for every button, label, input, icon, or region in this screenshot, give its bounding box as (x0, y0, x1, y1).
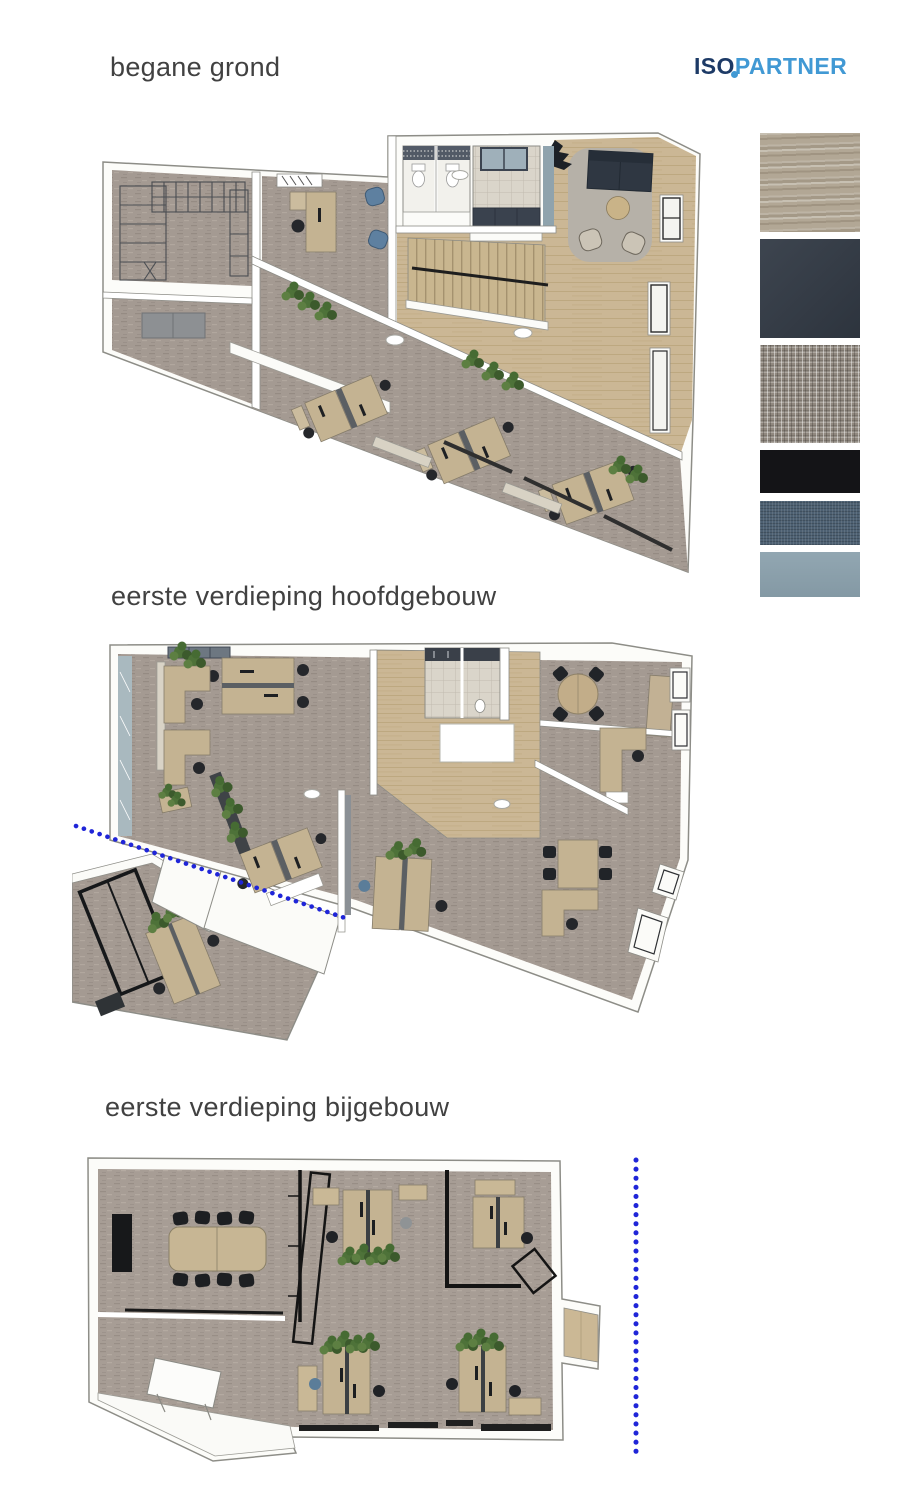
isopartner-logo: ISOPARTNER (694, 53, 847, 80)
toilet (412, 164, 425, 187)
floor-plan-begane-grond (92, 120, 704, 582)
tv-screen (112, 1214, 132, 1272)
plan-title-bijgebouw: eerste verdieping bijgebouw (105, 1092, 449, 1123)
material-swatch-carpet (760, 345, 860, 443)
vestibule (564, 1308, 598, 1362)
sofa (587, 150, 653, 191)
glass-wall (118, 656, 132, 836)
office-chair (292, 220, 305, 233)
floor-plan-hoofdgebouw (72, 632, 707, 1042)
logo-o-dot-icon (731, 71, 738, 78)
meeting-desk (558, 840, 598, 888)
plan-sheet: begane grond ISOPARTNER (0, 0, 900, 1494)
material-swatch-charcoal (760, 239, 860, 338)
logo-iso: ISO (694, 53, 735, 79)
conference-table (169, 1227, 266, 1271)
plan-title-hoofdgebouw: eerste verdieping hoofdgebouw (111, 581, 496, 612)
stair-void (440, 724, 514, 762)
plan-title-begane-grond: begane grond (110, 52, 280, 83)
logo-partner: PARTNER (735, 53, 847, 79)
coffee-table (607, 197, 630, 220)
material-swatch-denim (760, 501, 860, 545)
desk-cluster (207, 658, 309, 714)
toilet-rooms (403, 146, 470, 230)
material-swatch-black-fabric (760, 450, 860, 493)
material-swatch-wood (760, 133, 860, 232)
toilet (475, 700, 485, 713)
bathroom (425, 648, 509, 720)
floor-plan-bijgebouw (85, 1150, 645, 1480)
material-swatch-steel-blue (760, 552, 860, 597)
